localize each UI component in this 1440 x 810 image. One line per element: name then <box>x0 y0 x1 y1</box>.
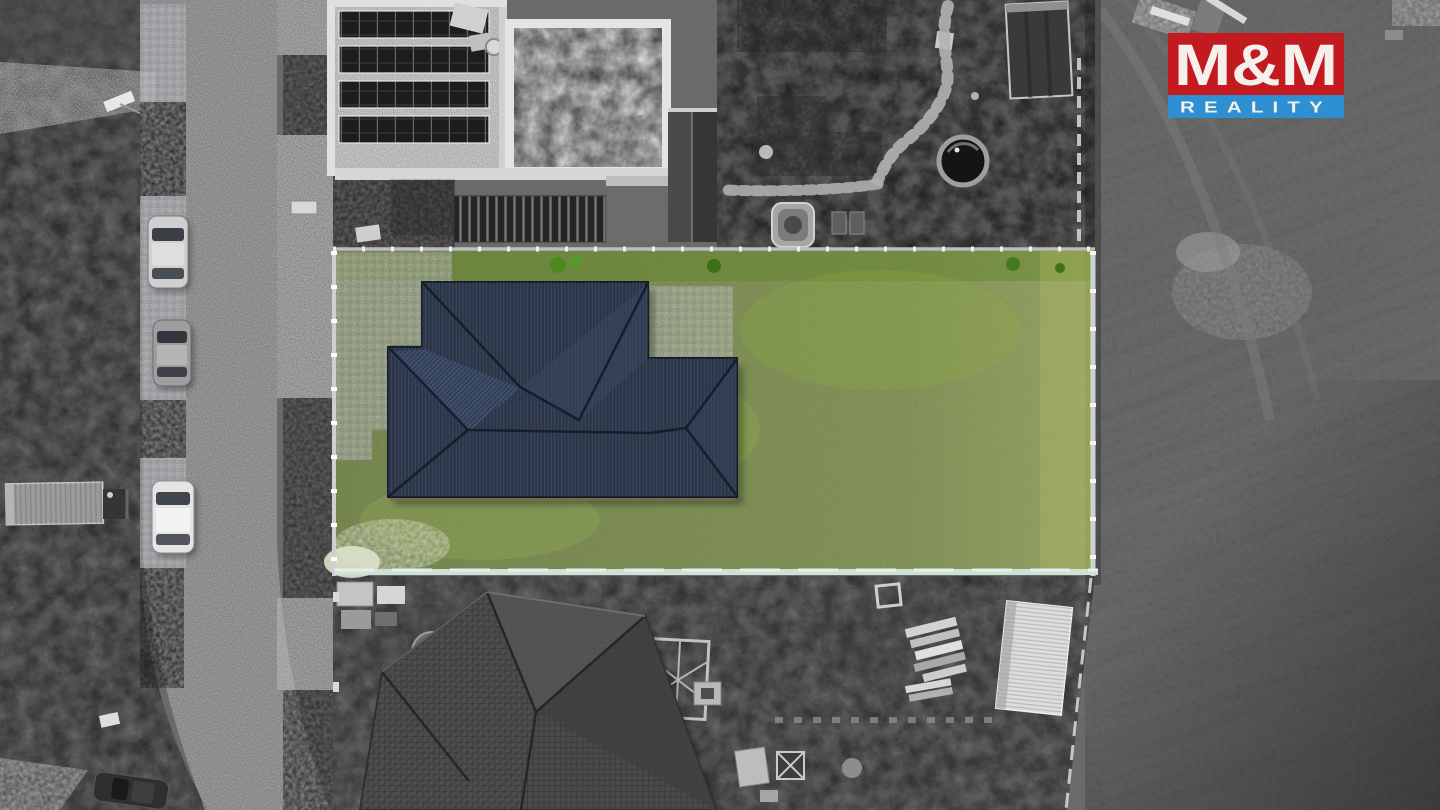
sidewalk-mid <box>277 135 333 398</box>
deck-chair <box>850 212 864 234</box>
awning-dark <box>390 180 454 236</box>
roof-drain <box>597 119 603 125</box>
path-strip <box>606 176 670 186</box>
roof-drain <box>637 115 643 121</box>
water-sparkle <box>971 92 979 100</box>
verge-strip-low <box>283 690 333 810</box>
forklift <box>103 489 127 519</box>
parked-car <box>148 216 191 292</box>
parked-car <box>152 481 197 557</box>
green-roof-vegetation <box>514 28 662 167</box>
lawn-mottle <box>740 270 1020 390</box>
neighbor-house-top <box>327 0 717 250</box>
agency-logo: M&M REALITY <box>1168 33 1344 118</box>
sidewalk-top <box>277 0 333 55</box>
pergola-terrace <box>454 196 606 242</box>
top-left-gravel <box>0 0 140 58</box>
neighbor-garden-top <box>717 0 1095 250</box>
terrace-gravel <box>606 188 670 242</box>
logo-text-reality: REALITY <box>1180 100 1332 117</box>
verge-strip-dark <box>283 398 333 598</box>
site-shed-white <box>996 601 1073 715</box>
aerial-property-photo: M&M REALITY <box>0 0 1440 810</box>
lawn-yellow-band <box>1040 251 1095 575</box>
deck-chair <box>832 212 846 234</box>
field-dark-corner <box>1085 380 1440 810</box>
driveway-spur <box>277 598 333 690</box>
white-flowers <box>759 145 773 159</box>
shipping-container <box>6 482 104 525</box>
scene-canvas: M&M REALITY <box>0 0 1440 810</box>
garden-pond <box>939 137 987 185</box>
gate-post <box>333 592 339 602</box>
patio-furniture-area <box>737 0 887 52</box>
verge-strip <box>283 55 333 135</box>
chimney-base <box>694 682 721 705</box>
side-wing-roof <box>668 108 717 242</box>
paver-driveway <box>650 286 733 358</box>
parked-car <box>153 320 194 390</box>
logo-text-mm: M&M <box>1174 33 1338 98</box>
garden-shed <box>1006 1 1073 98</box>
highlighted-parcel <box>324 249 1098 578</box>
gate-post <box>333 682 339 692</box>
hot-tub <box>772 203 814 247</box>
roof-drain <box>542 117 548 123</box>
bench <box>291 201 317 214</box>
